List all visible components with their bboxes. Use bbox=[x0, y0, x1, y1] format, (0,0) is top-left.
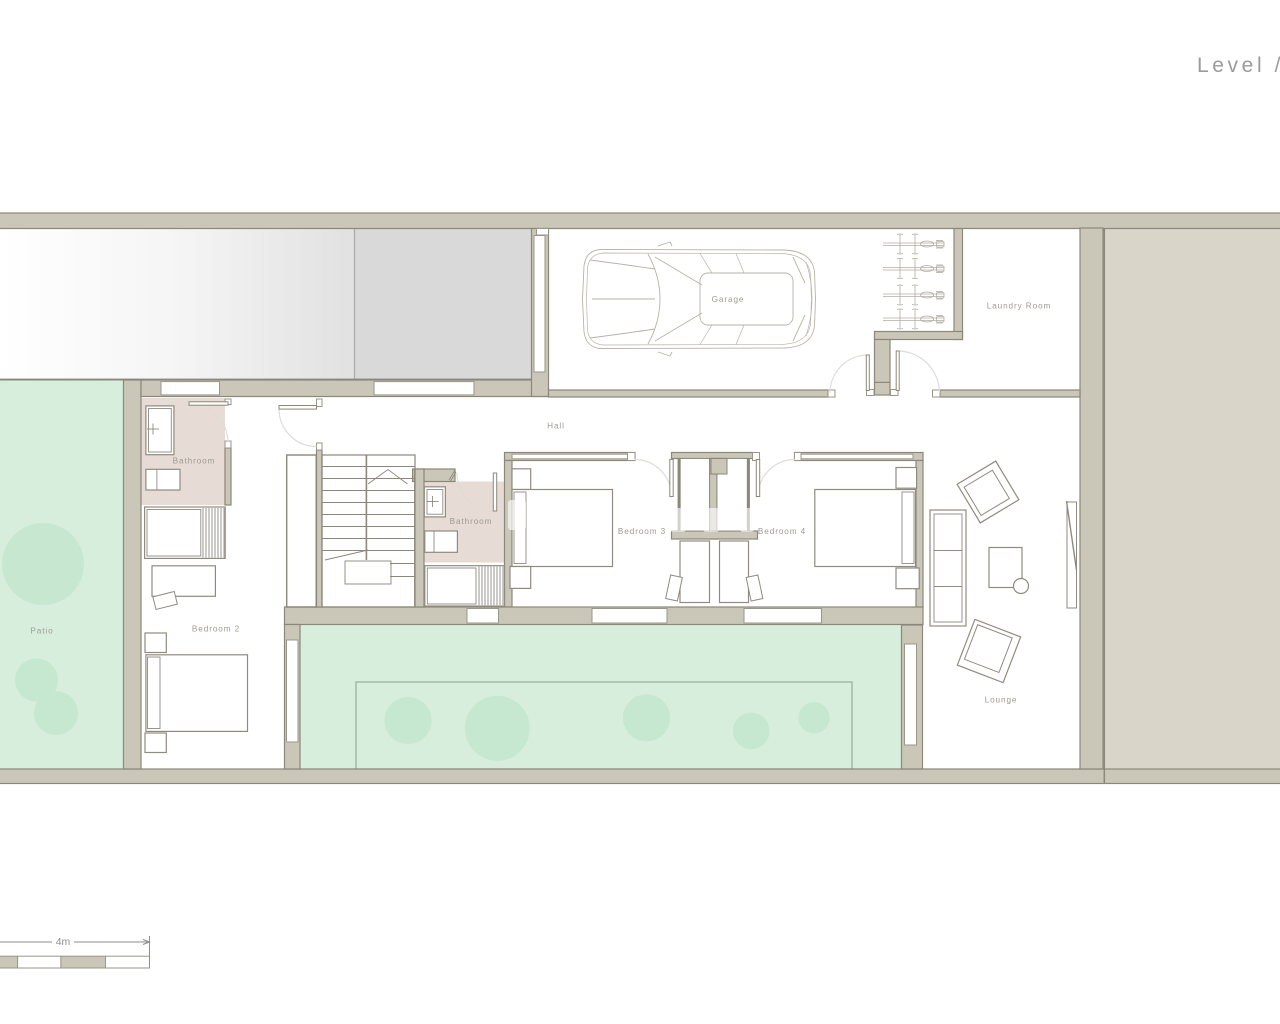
svg-text:Level /: Level / bbox=[1197, 54, 1280, 77]
svg-text:4m: 4m bbox=[56, 936, 71, 948]
svg-text:Bedroom 4: Bedroom 4 bbox=[758, 527, 806, 536]
svg-text:Laundry Room: Laundry Room bbox=[987, 302, 1052, 311]
svg-text:Bathroom: Bathroom bbox=[173, 457, 216, 466]
svg-text:Bedroom 3: Bedroom 3 bbox=[618, 527, 666, 536]
svg-text:Garage: Garage bbox=[712, 295, 745, 304]
svg-text:Hall: Hall bbox=[547, 422, 565, 431]
svg-text:Bedroom 2: Bedroom 2 bbox=[192, 625, 240, 634]
svg-text:Patio: Patio bbox=[30, 627, 53, 636]
svg-text:Lounge: Lounge bbox=[985, 696, 1018, 705]
svg-text:Bathroom: Bathroom bbox=[450, 517, 493, 526]
